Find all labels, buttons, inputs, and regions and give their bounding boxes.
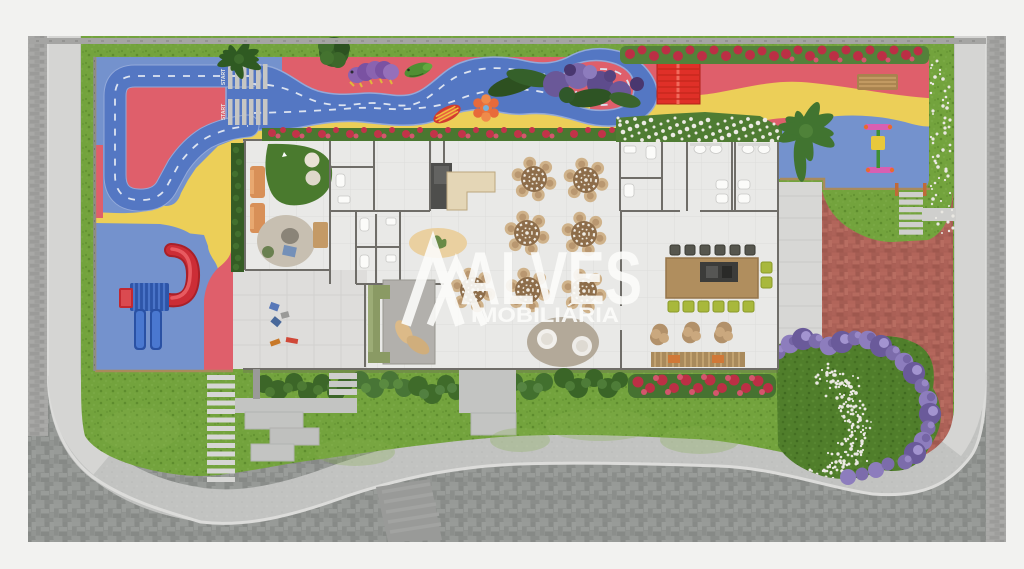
svg-text:START: START (221, 69, 227, 85)
svg-text:IMOBILIÁRIA: IMOBILIÁRIA (471, 302, 619, 327)
svg-text:START: START (221, 104, 227, 120)
